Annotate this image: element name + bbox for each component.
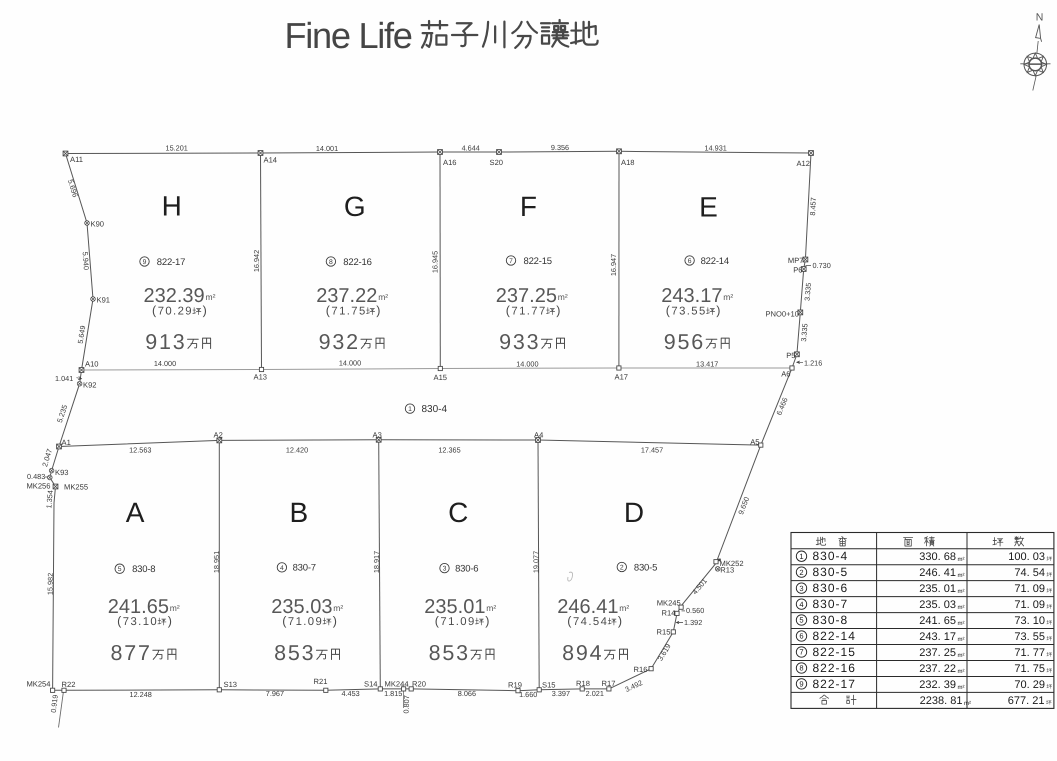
svg-text:18.951: 18.951	[212, 551, 221, 573]
svg-text:A15: A15	[434, 373, 448, 382]
svg-text:F: F	[520, 191, 537, 222]
svg-text:830-4: 830-4	[813, 549, 849, 563]
svg-text:12.365: 12.365	[438, 445, 460, 454]
svg-text:K90: K90	[91, 220, 105, 229]
svg-text:R19: R19	[508, 681, 522, 690]
svg-text:7.967: 7.967	[266, 689, 284, 698]
svg-text:894: 894	[562, 641, 603, 665]
svg-text:R16: R16	[634, 665, 648, 674]
svg-text:14.000: 14.000	[516, 360, 538, 369]
svg-text:74.54: 74.54	[573, 616, 608, 628]
svg-text:16.942: 16.942	[252, 250, 261, 272]
svg-text:71. 75: 71. 75	[1014, 663, 1045, 675]
svg-text:73. 55: 73. 55	[1014, 631, 1045, 643]
svg-text:12.420: 12.420	[286, 445, 308, 454]
svg-text:m²: m²	[333, 603, 343, 613]
svg-text:4.644: 4.644	[462, 144, 480, 153]
svg-text:6: 6	[799, 632, 803, 641]
svg-text:m²: m²	[378, 292, 388, 302]
svg-text:4: 4	[280, 565, 284, 572]
svg-text:100. 03: 100. 03	[1008, 551, 1045, 563]
svg-text:830-5: 830-5	[813, 565, 849, 579]
svg-text:K91: K91	[97, 296, 111, 305]
svg-text:S14: S14	[364, 680, 378, 689]
svg-text:0.730: 0.730	[813, 261, 831, 270]
svg-text:822-14: 822-14	[813, 629, 856, 643]
svg-text:71.75: 71.75	[331, 305, 366, 317]
svg-text:m²: m²	[619, 603, 629, 613]
svg-text:K93: K93	[55, 468, 69, 477]
svg-text:822-17: 822-17	[157, 257, 185, 268]
svg-text:2: 2	[799, 568, 803, 577]
svg-text:822-16: 822-16	[813, 661, 856, 675]
svg-text:15.982: 15.982	[46, 573, 55, 595]
svg-text:822-17: 822-17	[813, 677, 856, 691]
svg-text:Fine Life: Fine Life	[285, 15, 412, 56]
svg-text:m²: m²	[958, 556, 965, 563]
svg-text:3.335: 3.335	[799, 323, 810, 342]
svg-text:12.563: 12.563	[129, 446, 151, 455]
svg-text:71.09: 71.09	[440, 616, 475, 628]
svg-text:A16: A16	[443, 158, 457, 167]
svg-text:MP7: MP7	[788, 256, 804, 265]
svg-text:71. 09: 71. 09	[1014, 599, 1045, 611]
svg-text:R20: R20	[412, 680, 426, 689]
svg-text:830-8: 830-8	[132, 564, 155, 575]
svg-text:A4: A4	[534, 431, 543, 440]
svg-text:71. 09: 71. 09	[1014, 583, 1045, 595]
svg-text:1.815: 1.815	[384, 689, 402, 698]
svg-text:7: 7	[799, 648, 803, 657]
svg-text:MK256: MK256	[26, 482, 50, 491]
svg-text:m²: m²	[958, 684, 965, 691]
svg-text:235.03: 235.03	[271, 596, 332, 618]
svg-text:A: A	[126, 497, 145, 528]
svg-text:1.041: 1.041	[55, 374, 73, 383]
svg-text:R15: R15	[657, 628, 671, 637]
svg-text:15.201: 15.201	[166, 144, 188, 153]
svg-text:14.000: 14.000	[154, 359, 176, 368]
svg-text:13.417: 13.417	[696, 360, 718, 369]
svg-text:A11: A11	[70, 155, 83, 164]
svg-text:m²: m²	[958, 588, 965, 595]
svg-text:830-7: 830-7	[813, 597, 849, 611]
svg-text:m²: m²	[723, 292, 733, 302]
svg-text:MK254: MK254	[26, 680, 50, 689]
svg-text:70. 29: 70. 29	[1014, 679, 1045, 691]
svg-text:677. 21: 677. 21	[1008, 695, 1045, 707]
svg-text:956: 956	[664, 330, 705, 354]
svg-text:8.066: 8.066	[458, 689, 476, 698]
svg-text:6: 6	[688, 258, 692, 265]
svg-text:237. 22: 237. 22	[919, 663, 956, 675]
svg-text:A12: A12	[796, 159, 810, 168]
svg-text:A14: A14	[264, 156, 278, 165]
svg-text:A2: A2	[214, 431, 223, 440]
svg-text:5: 5	[799, 616, 803, 625]
svg-text:830-7: 830-7	[293, 563, 316, 574]
svg-text:B: B	[289, 497, 308, 528]
svg-text:18.917: 18.917	[372, 551, 381, 573]
svg-text:4: 4	[799, 600, 803, 609]
svg-text:71. 77: 71. 77	[1014, 647, 1045, 659]
svg-text:73.10: 73.10	[123, 616, 158, 628]
svg-text:): )	[556, 303, 560, 317]
svg-text:73. 10: 73. 10	[1014, 615, 1045, 627]
svg-text:m²: m²	[170, 603, 180, 613]
svg-text:MK244: MK244	[385, 680, 409, 689]
svg-text:): )	[376, 303, 380, 317]
svg-text:17.457: 17.457	[641, 445, 663, 454]
svg-text:71.77: 71.77	[511, 305, 546, 317]
svg-text:913: 913	[145, 330, 186, 354]
svg-text:D: D	[624, 497, 644, 528]
svg-text:MK245: MK245	[657, 599, 681, 608]
svg-text:A3: A3	[373, 431, 382, 440]
svg-text:R21: R21	[314, 677, 328, 686]
svg-text:830-6: 830-6	[455, 563, 478, 574]
svg-text:S13: S13	[224, 680, 238, 689]
svg-text:12.248: 12.248	[130, 690, 152, 699]
svg-text:1.392: 1.392	[684, 618, 702, 627]
svg-text:0.807: 0.807	[401, 695, 411, 714]
svg-text:8: 8	[799, 664, 803, 673]
svg-text:0.919: 0.919	[49, 694, 60, 713]
svg-text:N: N	[1036, 12, 1044, 24]
svg-text:14.000: 14.000	[339, 359, 361, 368]
svg-text:822-15: 822-15	[524, 256, 552, 267]
svg-text:2238. 81: 2238. 81	[920, 695, 963, 707]
svg-text:237. 25: 237. 25	[919, 647, 956, 659]
svg-text:m²: m²	[958, 572, 965, 579]
svg-text:m²: m²	[486, 603, 496, 613]
svg-text:2: 2	[620, 564, 624, 571]
svg-text:0.560: 0.560	[686, 606, 704, 615]
svg-text:1.354: 1.354	[44, 490, 55, 509]
svg-text:9: 9	[799, 680, 803, 689]
svg-text:830-5: 830-5	[634, 562, 657, 573]
svg-text:830-4: 830-4	[422, 404, 448, 415]
svg-text:PNO0+10: PNO0+10	[765, 310, 799, 319]
svg-text:73.55: 73.55	[671, 305, 706, 317]
svg-text:235.01: 235.01	[424, 596, 485, 618]
svg-text:3.619: 3.619	[656, 642, 673, 662]
svg-text:A5: A5	[750, 438, 759, 447]
svg-text:235. 03: 235. 03	[919, 599, 956, 611]
svg-text:2.047: 2.047	[40, 448, 54, 468]
svg-text:m²: m²	[958, 636, 965, 643]
svg-text:E: E	[699, 192, 718, 223]
svg-text:P6: P6	[793, 266, 802, 275]
svg-text:933: 933	[499, 330, 540, 354]
svg-text:R13: R13	[720, 566, 734, 575]
svg-text:m²: m²	[958, 652, 965, 659]
svg-text:6.466: 6.466	[774, 396, 789, 416]
svg-text:): )	[485, 614, 489, 628]
svg-text:932: 932	[319, 330, 360, 354]
svg-text:A1: A1	[62, 438, 71, 447]
svg-text:S20: S20	[490, 158, 504, 167]
svg-text:m²: m²	[964, 700, 971, 707]
svg-text:822-15: 822-15	[813, 645, 856, 659]
svg-text:877: 877	[111, 641, 152, 665]
svg-text:3: 3	[799, 584, 803, 593]
svg-text:R22: R22	[62, 680, 76, 689]
svg-text:330. 68: 330. 68	[919, 551, 956, 563]
svg-text:1: 1	[799, 552, 803, 561]
svg-text:5.696: 5.696	[66, 178, 80, 198]
svg-text:): )	[168, 614, 172, 628]
svg-text:822-14: 822-14	[701, 256, 729, 267]
svg-text:m²: m²	[958, 604, 965, 611]
svg-text:830-8: 830-8	[813, 613, 849, 627]
svg-text:R14: R14	[662, 609, 676, 618]
svg-text:MK255: MK255	[64, 483, 88, 492]
svg-text:8: 8	[329, 259, 333, 266]
svg-text:241. 65: 241. 65	[919, 615, 956, 627]
svg-text:m²: m²	[206, 292, 216, 302]
svg-text:m²: m²	[958, 668, 965, 675]
svg-text:5: 5	[118, 566, 122, 573]
svg-text:1.216: 1.216	[804, 359, 822, 368]
svg-text:5.940: 5.940	[81, 251, 91, 270]
svg-text:9.650: 9.650	[736, 496, 751, 516]
svg-text:16.947: 16.947	[609, 254, 618, 276]
svg-text:A10: A10	[85, 360, 99, 369]
svg-text:70.29: 70.29	[158, 305, 193, 317]
svg-text:74. 54: 74. 54	[1014, 567, 1045, 579]
svg-text:822-16: 822-16	[343, 257, 371, 268]
svg-text:7: 7	[509, 258, 513, 265]
svg-text:3.397: 3.397	[552, 689, 570, 698]
svg-text:R18: R18	[576, 679, 590, 688]
svg-text:P5: P5	[786, 351, 795, 360]
svg-text:3.335: 3.335	[803, 282, 814, 301]
svg-text:232. 39: 232. 39	[919, 679, 956, 691]
svg-text:0.483: 0.483	[27, 472, 45, 481]
svg-text:14.931: 14.931	[705, 144, 727, 153]
svg-text:243.17: 243.17	[661, 285, 722, 307]
svg-text:9: 9	[143, 259, 147, 266]
svg-text:1.660: 1.660	[519, 690, 537, 699]
svg-text:): )	[716, 303, 720, 317]
svg-text:4.501: 4.501	[690, 577, 709, 597]
svg-text:): )	[333, 614, 337, 628]
svg-text:G: G	[344, 191, 366, 222]
svg-text:H: H	[162, 191, 182, 222]
svg-text:): )	[618, 614, 622, 628]
svg-text:16.945: 16.945	[431, 251, 440, 273]
svg-text:830-6: 830-6	[813, 581, 849, 595]
svg-text:9.356: 9.356	[551, 143, 569, 152]
svg-text:A17: A17	[615, 373, 629, 382]
svg-text:71.09: 71.09	[288, 616, 323, 628]
svg-text:235. 01: 235. 01	[919, 583, 956, 595]
svg-text:3: 3	[443, 566, 447, 573]
svg-text:2.021: 2.021	[586, 689, 604, 698]
svg-text:A6: A6	[781, 370, 790, 379]
svg-text:4.453: 4.453	[341, 689, 359, 698]
svg-text:A13: A13	[254, 373, 268, 382]
svg-text:R17: R17	[602, 679, 616, 688]
svg-text:246. 41: 246. 41	[919, 567, 956, 579]
svg-text:14.001: 14.001	[316, 144, 338, 153]
svg-text:8.457: 8.457	[808, 197, 818, 216]
svg-text:m²: m²	[558, 292, 568, 302]
svg-text:): )	[203, 303, 207, 317]
svg-text:A18: A18	[621, 158, 635, 167]
svg-text:C: C	[448, 497, 468, 528]
svg-text:853: 853	[274, 641, 315, 665]
svg-text:K92: K92	[83, 381, 97, 390]
svg-text:853: 853	[429, 641, 470, 665]
svg-text:243. 17: 243. 17	[919, 631, 956, 643]
svg-text:m²: m²	[958, 620, 965, 627]
svg-text:19.077: 19.077	[531, 551, 540, 573]
svg-text:1: 1	[408, 406, 412, 413]
